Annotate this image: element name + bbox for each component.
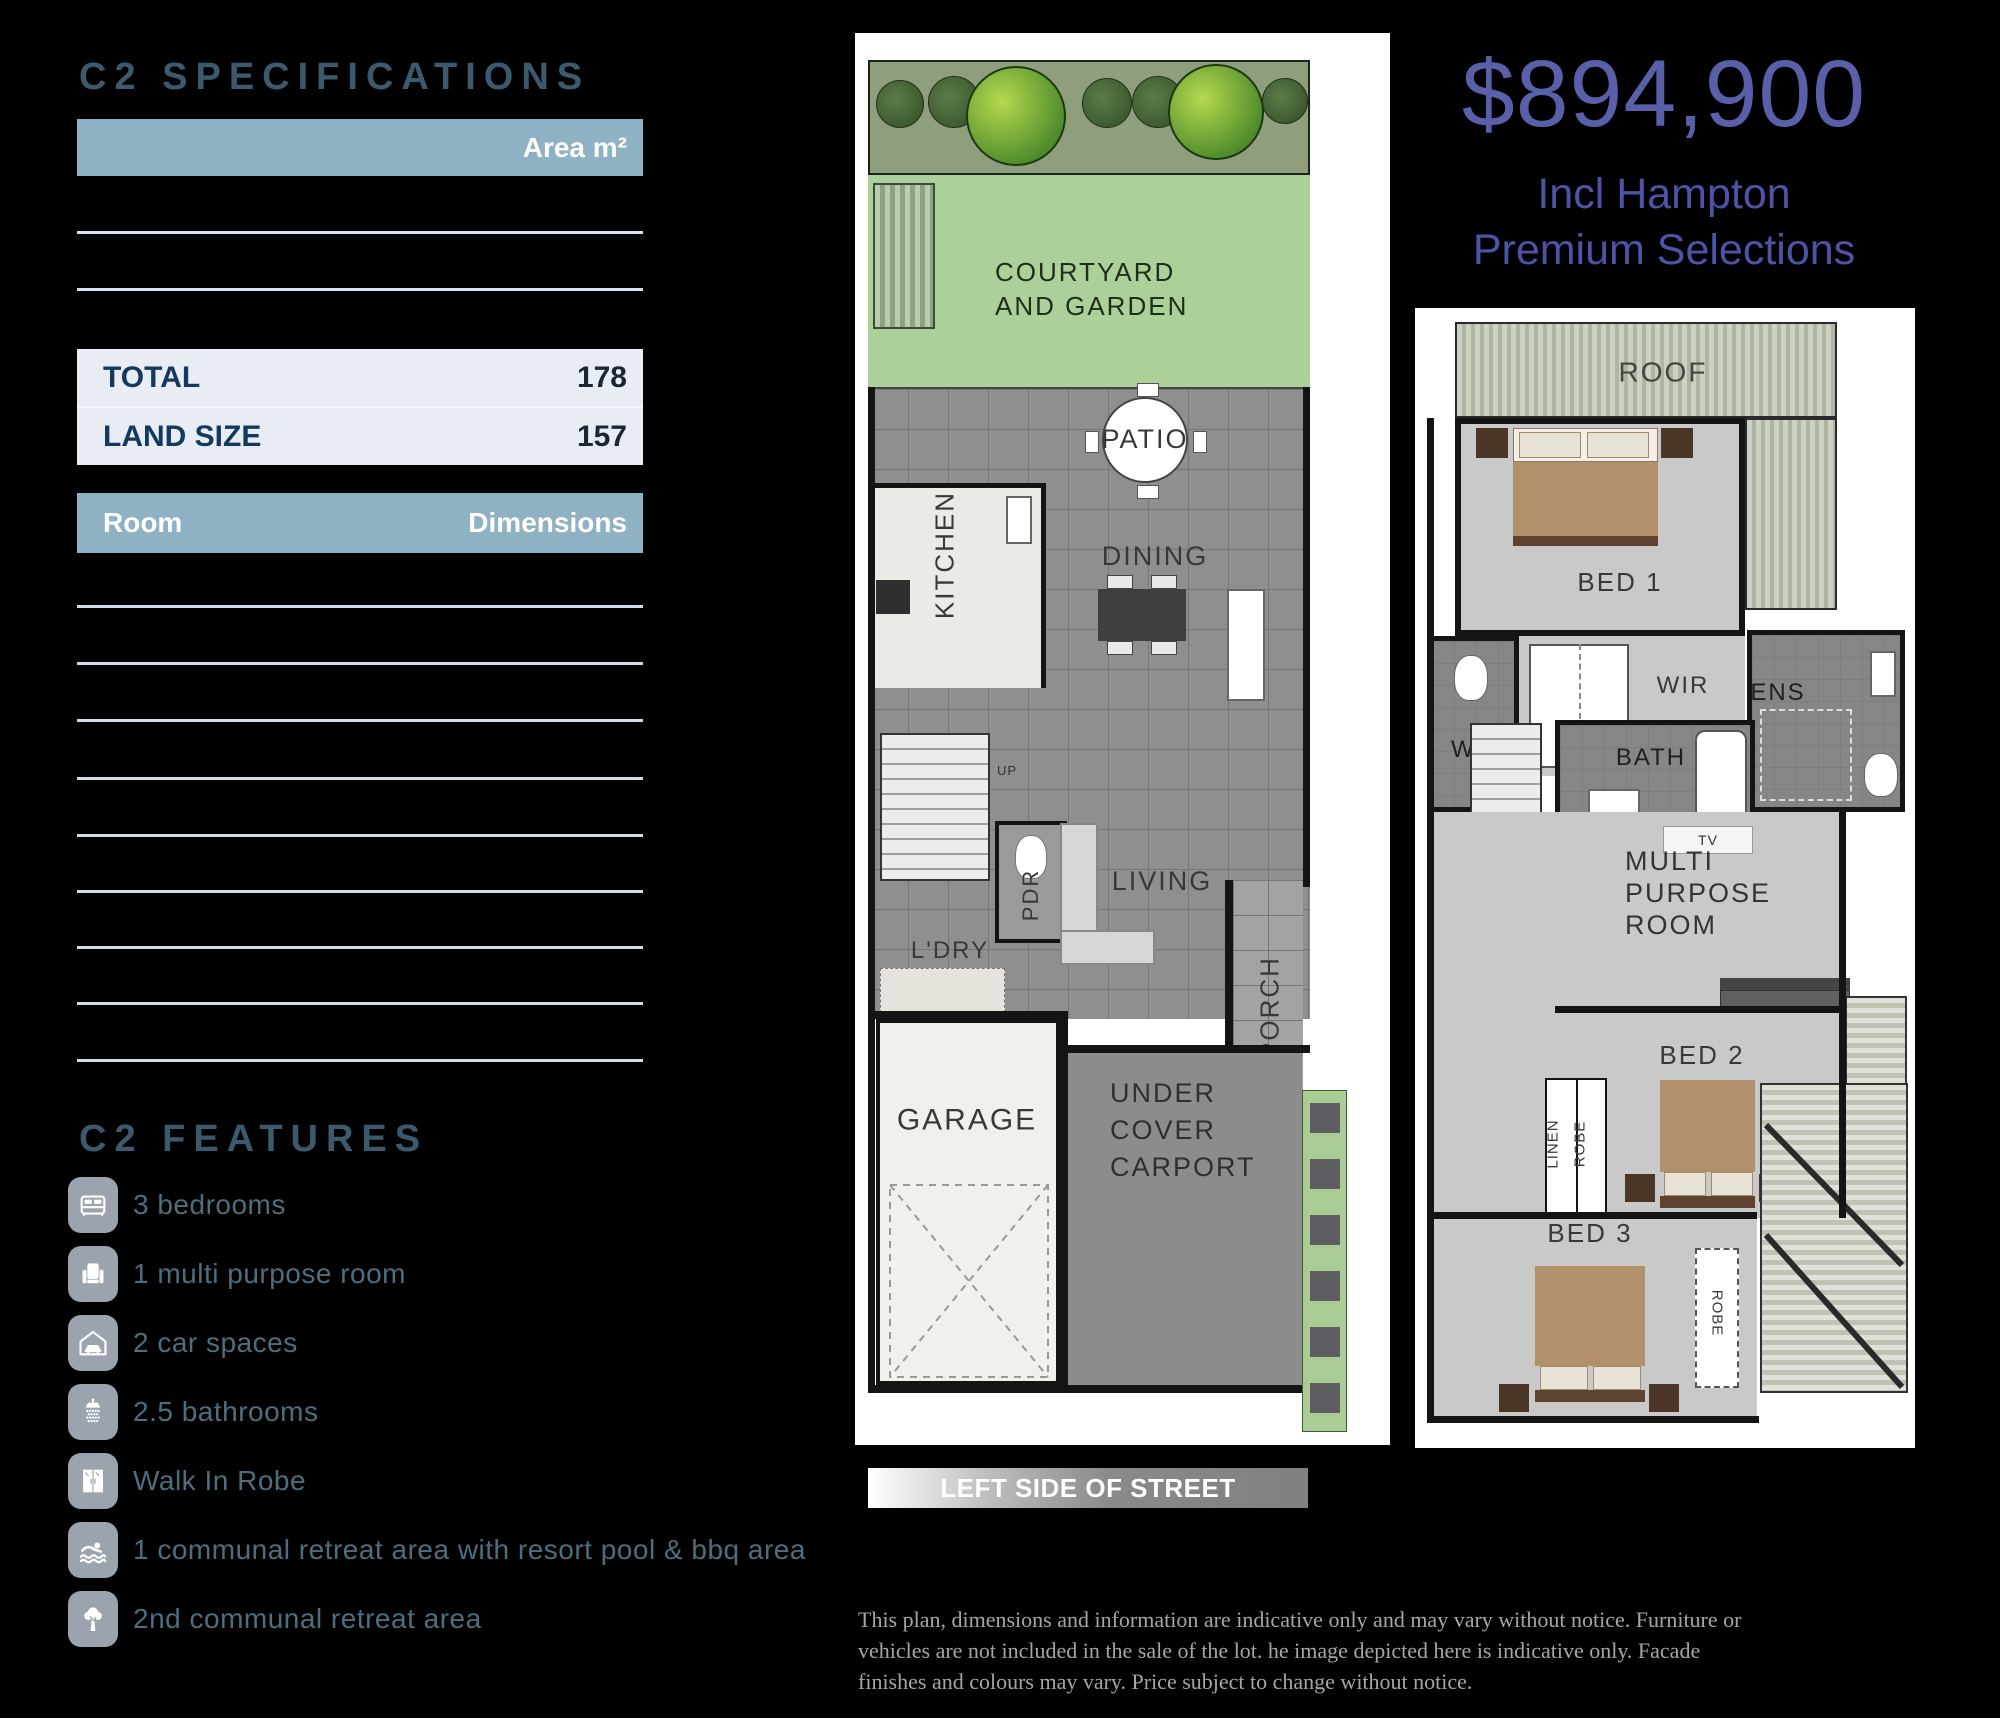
feature-item-bathrooms: 2.5 bathrooms bbox=[68, 1384, 806, 1440]
pillow bbox=[1664, 1172, 1706, 1196]
bathtub bbox=[1695, 730, 1747, 820]
toilet bbox=[1454, 655, 1488, 701]
up-label: UP bbox=[997, 763, 1017, 778]
feature-label: 1 multi purpose room bbox=[133, 1258, 406, 1290]
planter-boxes bbox=[1302, 1090, 1347, 1432]
feature-label: 2.5 bathrooms bbox=[133, 1396, 319, 1428]
patio-chair bbox=[1137, 485, 1159, 499]
bush bbox=[1082, 78, 1132, 128]
cooktop bbox=[876, 580, 910, 614]
dining-label: DINING bbox=[1102, 540, 1209, 574]
garage-area bbox=[876, 1019, 1060, 1385]
bed2-label: BED 2 bbox=[1659, 1039, 1744, 1072]
total-value: 178 bbox=[577, 361, 627, 395]
pillow bbox=[1540, 1366, 1588, 1390]
feature-label: Walk In Robe bbox=[133, 1465, 306, 1497]
room-empty-row-line bbox=[77, 1059, 643, 1062]
wall bbox=[1060, 1019, 1068, 1393]
room-empty-row-line bbox=[77, 777, 643, 780]
ensuite-room bbox=[1747, 630, 1905, 812]
bed3-label: BED 3 bbox=[1547, 1217, 1632, 1250]
pdr-label: PDR bbox=[1018, 869, 1044, 921]
stairs-ground bbox=[880, 733, 990, 881]
planter-cell bbox=[1310, 1271, 1340, 1301]
linen-label: LINEN bbox=[1545, 1119, 1562, 1168]
feature-label: 2 car spaces bbox=[133, 1327, 298, 1359]
garden-strip bbox=[868, 60, 1310, 175]
feature-item-communal-retreat-2: 2nd communal retreat area bbox=[68, 1591, 806, 1647]
multi-purpose-label: MULTI PURPOSE ROOM bbox=[1625, 845, 1771, 941]
laundry-bench bbox=[880, 968, 1005, 1013]
price-block: $894,900 Incl Hampton Premium Selections bbox=[1424, 40, 1904, 279]
spec-empty-row-line bbox=[77, 288, 643, 291]
wall bbox=[1427, 418, 1434, 1423]
price-subtitle: Incl Hampton Premium Selections bbox=[1424, 167, 1904, 279]
kitchen-label: KITCHEN bbox=[930, 491, 961, 619]
features-title: C2 FEATURES bbox=[79, 1118, 428, 1161]
bedside-table bbox=[1625, 1174, 1655, 1202]
bed-head bbox=[1660, 1196, 1755, 1208]
bed bbox=[1660, 1080, 1755, 1172]
bush bbox=[876, 80, 924, 128]
roof-label: ROOF bbox=[1619, 355, 1708, 390]
living-label: LIVING bbox=[1112, 865, 1213, 899]
wir-label: WIR bbox=[1657, 671, 1710, 701]
wall bbox=[868, 1385, 1310, 1393]
deck-braces bbox=[1762, 1085, 1906, 1391]
land-size-row: LAND SIZE 157 bbox=[77, 408, 643, 465]
dining-chair bbox=[1107, 641, 1133, 655]
room-empty-row-line bbox=[77, 719, 643, 722]
features-list: 3 bedrooms 1 multi purpose room 2 car sp… bbox=[68, 1177, 806, 1660]
planter-cell bbox=[1310, 1327, 1340, 1357]
price-subtitle-line2: Premium Selections bbox=[1424, 223, 1904, 279]
price-amount: $894,900 bbox=[1424, 40, 1904, 149]
pantry-fridge bbox=[1227, 589, 1265, 701]
patio-label: PATIO bbox=[1101, 423, 1188, 457]
pillow bbox=[1587, 432, 1649, 458]
room-empty-row-line bbox=[77, 1002, 643, 1005]
bush bbox=[1262, 78, 1308, 124]
bed-head bbox=[1535, 1390, 1645, 1402]
tree bbox=[1168, 64, 1264, 160]
car-garage-icon bbox=[68, 1315, 118, 1371]
kitchen-sink bbox=[1006, 496, 1032, 544]
bedside-table bbox=[1649, 1384, 1679, 1412]
feature-item-car-spaces: 2 car spaces bbox=[68, 1315, 806, 1371]
sofa-back bbox=[1720, 978, 1850, 990]
total-label: TOTAL bbox=[103, 361, 200, 395]
specifications-title: C2 SPECIFICATIONS bbox=[79, 56, 590, 99]
wall bbox=[1303, 387, 1310, 887]
room-empty-row-line bbox=[77, 662, 643, 665]
first-floor-plan: ROOF BED 1 WC WIR ENS bbox=[1415, 308, 1915, 1448]
wardrobe-icon bbox=[68, 1453, 118, 1509]
garage-label: GARAGE bbox=[897, 1101, 1037, 1139]
laundry-label: L'DRY bbox=[911, 936, 989, 966]
bath-label: BATH bbox=[1616, 743, 1686, 773]
wall bbox=[1555, 1006, 1845, 1013]
bed1-label: BED 1 bbox=[1577, 566, 1662, 599]
wall bbox=[868, 1011, 1068, 1019]
garage-marking bbox=[888, 1183, 1050, 1379]
wall bbox=[1427, 1416, 1759, 1423]
bedside-table bbox=[1476, 428, 1508, 458]
street-side-banner: LEFT SIDE OF STREET bbox=[868, 1468, 1308, 1508]
feature-label: 2nd communal retreat area bbox=[133, 1603, 482, 1635]
feature-item-communal-retreat-pool: 1 communal retreat area with resort pool… bbox=[68, 1522, 806, 1578]
side-deck-upper bbox=[1845, 996, 1907, 1088]
courtyard-label: COURTYARD AND GARDEN bbox=[995, 255, 1188, 323]
planter-cell bbox=[1310, 1159, 1340, 1189]
room-header-bar: Room Dimensions bbox=[77, 493, 643, 553]
bed3-robe-label: ROBE bbox=[1709, 1290, 1726, 1337]
planter-cell bbox=[1310, 1103, 1340, 1133]
side-deck bbox=[873, 183, 935, 329]
room-empty-row-line bbox=[77, 946, 643, 949]
wall bbox=[868, 387, 875, 1393]
tree-icon bbox=[68, 1591, 118, 1647]
ground-floor-plan: COURTYARD AND GARDEN KITCHEN PATIO DININ… bbox=[855, 33, 1390, 1445]
armchair-icon bbox=[68, 1246, 118, 1302]
dining-chair bbox=[1107, 575, 1133, 589]
flyer-page: C2 SPECIFICATIONS Area m² TOTAL 178 LAND… bbox=[0, 0, 2000, 1718]
street-side-label: LEFT SIDE OF STREET bbox=[940, 1473, 1236, 1504]
spec-empty-row-line bbox=[77, 231, 643, 234]
area-header-bar: Area m² bbox=[77, 119, 643, 176]
feature-item-multi-purpose: 1 multi purpose room bbox=[68, 1246, 806, 1302]
room-empty-row-line bbox=[77, 834, 643, 837]
patio-chair bbox=[1193, 431, 1207, 453]
vanity bbox=[1870, 651, 1896, 697]
roof-area-side bbox=[1745, 418, 1837, 610]
carport-label: UNDER COVER CARPORT bbox=[1110, 1075, 1256, 1186]
pillow bbox=[1519, 432, 1581, 458]
feature-label: 3 bedrooms bbox=[133, 1189, 286, 1221]
ens-label: ENS bbox=[1750, 678, 1805, 708]
bedside-table bbox=[1661, 428, 1693, 458]
bed-icon bbox=[68, 1177, 118, 1233]
bed-foot bbox=[1513, 536, 1658, 546]
area-header-label: Area m² bbox=[523, 132, 627, 164]
tree bbox=[966, 66, 1066, 166]
land-size-value: 157 bbox=[577, 420, 627, 454]
pillow bbox=[1711, 1172, 1753, 1196]
land-size-label: LAND SIZE bbox=[103, 420, 261, 454]
swimmer-icon bbox=[68, 1522, 118, 1578]
bed bbox=[1535, 1266, 1645, 1366]
price-subtitle-line1: Incl Hampton bbox=[1424, 167, 1904, 223]
feature-label: 1 communal retreat area with resort pool… bbox=[133, 1534, 806, 1566]
wall bbox=[1839, 812, 1846, 1218]
rear-deck bbox=[1760, 1083, 1908, 1393]
bed bbox=[1513, 462, 1658, 540]
wall bbox=[1427, 1212, 1757, 1219]
room-header-label: Room bbox=[103, 507, 182, 539]
bed2-robe-label: ROBE bbox=[1572, 1121, 1589, 1168]
shower bbox=[1760, 709, 1852, 801]
bed1-room bbox=[1455, 418, 1745, 636]
planter-cell bbox=[1310, 1215, 1340, 1245]
wall bbox=[1060, 1045, 1310, 1053]
toilet bbox=[1864, 753, 1898, 797]
dining-table bbox=[1098, 589, 1186, 641]
bedside-table bbox=[1499, 1384, 1529, 1412]
shower-icon bbox=[68, 1384, 118, 1440]
disclaimer-text: This plan, dimensions and information ar… bbox=[858, 1604, 1748, 1698]
dining-chair bbox=[1151, 575, 1177, 589]
planter-cell bbox=[1310, 1383, 1340, 1413]
feature-item-bedrooms: 3 bedrooms bbox=[68, 1177, 806, 1233]
feature-item-walk-in-robe: Walk In Robe bbox=[68, 1453, 806, 1509]
patio-chair bbox=[1137, 383, 1159, 397]
dimensions-header-label: Dimensions bbox=[468, 507, 627, 539]
dining-chair bbox=[1151, 641, 1177, 655]
room-empty-row-line bbox=[77, 890, 643, 893]
room-empty-row-line bbox=[77, 605, 643, 608]
patio-chair bbox=[1085, 431, 1099, 453]
pillow bbox=[1593, 1366, 1641, 1390]
sofa bbox=[1060, 930, 1155, 965]
total-row: TOTAL 178 bbox=[77, 349, 643, 406]
